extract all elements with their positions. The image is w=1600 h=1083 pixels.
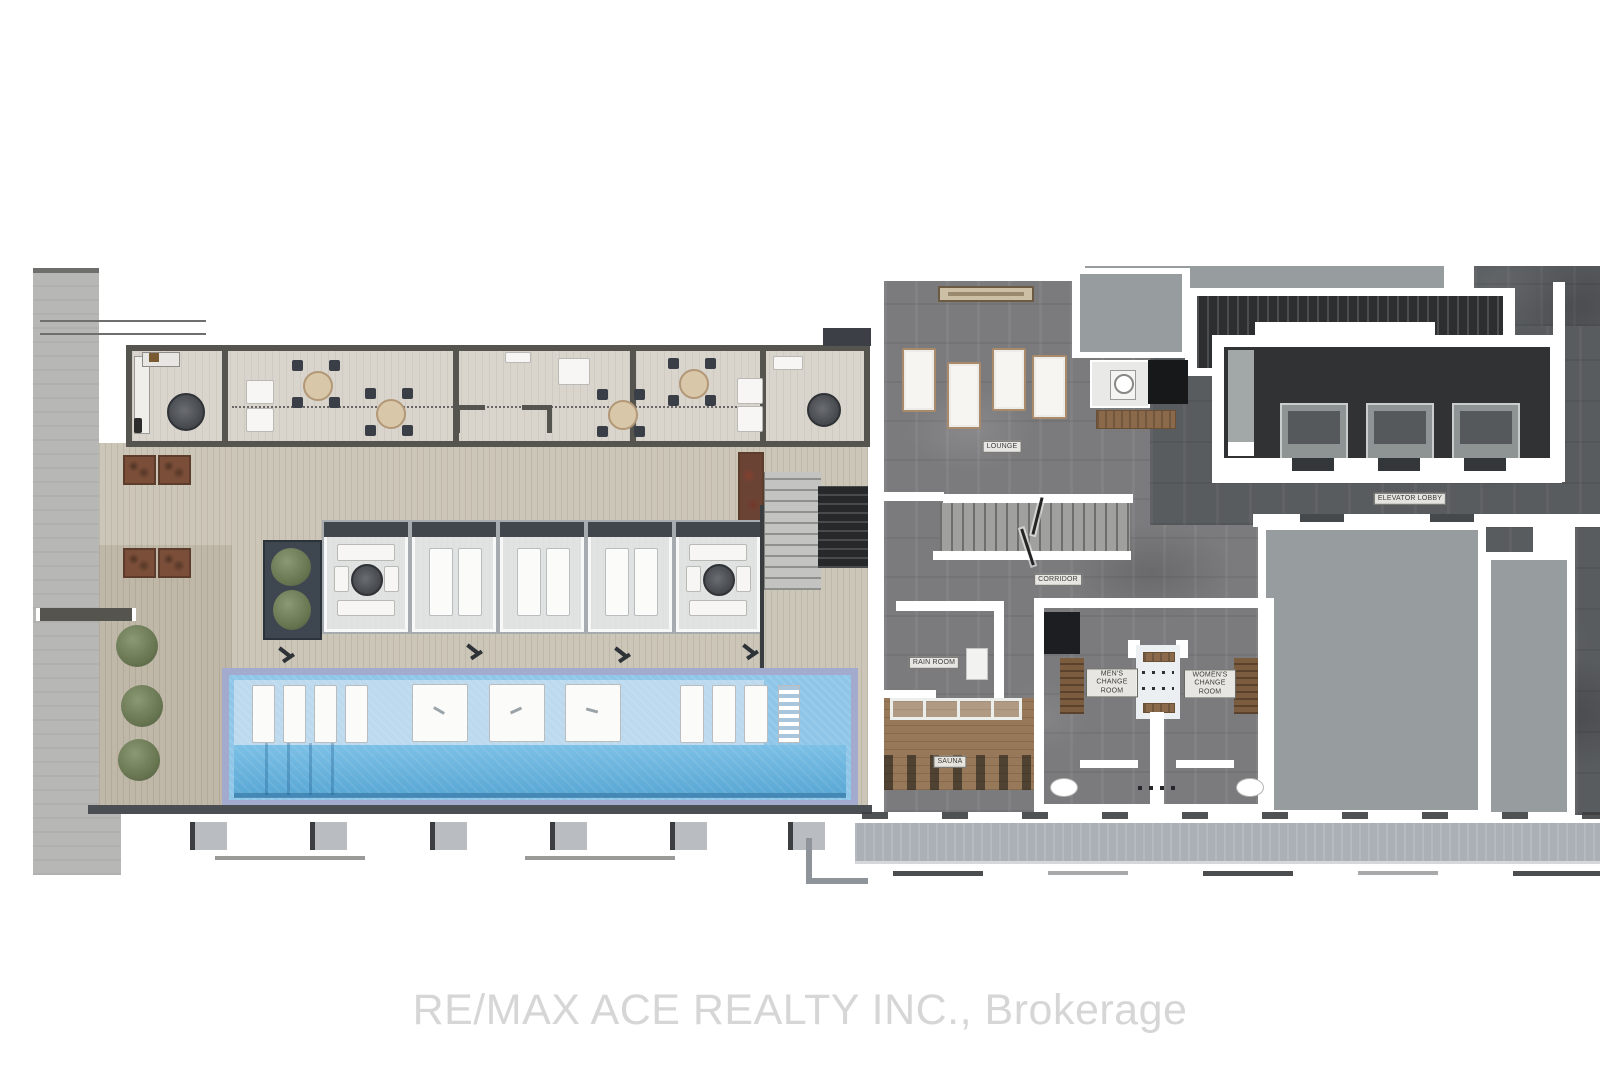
water-shadow bbox=[287, 743, 290, 795]
label-sauna: SAUNA bbox=[933, 756, 966, 768]
curb-tick bbox=[1203, 871, 1293, 876]
water-shadow bbox=[309, 743, 312, 795]
cabana-roof bbox=[588, 522, 672, 537]
curb-tick bbox=[1048, 871, 1128, 875]
armchair bbox=[737, 406, 763, 432]
cabana-roof bbox=[676, 522, 760, 537]
cabana-lounger bbox=[546, 548, 570, 616]
shower-dots bbox=[1138, 786, 1176, 790]
chair bbox=[668, 395, 679, 406]
foliage bbox=[271, 548, 311, 586]
umbrella-icon bbox=[278, 646, 298, 666]
cabana-lounger bbox=[429, 548, 453, 616]
roof-block bbox=[823, 328, 871, 346]
washroom-wall bbox=[1150, 712, 1164, 806]
cabana-sofa bbox=[337, 544, 395, 561]
elevator-cab bbox=[1288, 411, 1340, 444]
cabinet bbox=[773, 356, 803, 370]
sidewalk bbox=[855, 820, 1600, 864]
rain-room-wall bbox=[896, 601, 1000, 611]
chair bbox=[634, 426, 645, 437]
kitchen-appliance bbox=[142, 352, 180, 367]
lockers-womens bbox=[1234, 658, 1258, 714]
pool-lounger bbox=[744, 685, 768, 743]
chair bbox=[402, 388, 413, 399]
chair bbox=[329, 397, 340, 408]
screen-partition bbox=[547, 405, 552, 433]
pool-lounger bbox=[680, 685, 704, 743]
cabana-roof bbox=[324, 522, 408, 537]
storage-dark bbox=[1044, 612, 1080, 654]
dining-set bbox=[666, 356, 718, 408]
shaft-column bbox=[1228, 350, 1254, 456]
chair bbox=[292, 397, 303, 408]
deck-shade bbox=[99, 545, 232, 813]
watermark-text: RE/MAX ACE REALTY INC., Brokerage bbox=[413, 986, 1188, 1035]
pool-daybed bbox=[412, 684, 468, 742]
chair bbox=[597, 426, 608, 437]
column bbox=[670, 822, 707, 850]
curb-tick bbox=[1358, 871, 1438, 875]
chair bbox=[329, 360, 340, 371]
cabana bbox=[410, 520, 498, 634]
elevator-car bbox=[1366, 403, 1434, 460]
round-table bbox=[167, 393, 205, 431]
chair bbox=[292, 360, 303, 371]
cabinet bbox=[505, 352, 531, 363]
elevator-cab bbox=[1374, 411, 1426, 444]
chair bbox=[365, 425, 376, 436]
rain-room-fixture bbox=[966, 648, 988, 680]
grey-room-right bbox=[1491, 560, 1567, 812]
cabana-table bbox=[703, 564, 735, 596]
planter-box bbox=[158, 455, 191, 485]
toilet bbox=[1050, 778, 1078, 797]
wall-segment bbox=[36, 608, 136, 621]
dining-table bbox=[376, 399, 406, 429]
railing-top-left bbox=[40, 320, 206, 335]
kitchen-item-dark bbox=[134, 418, 142, 433]
pool-lounger bbox=[283, 685, 306, 743]
concrete-edge bbox=[33, 268, 99, 273]
change-room-wall bbox=[1264, 598, 1274, 812]
label-lounge: LOUNGE bbox=[983, 441, 1022, 453]
label-mens-change-room: MEN'S CHANGE ROOM bbox=[1086, 668, 1138, 697]
lockers-mens bbox=[1060, 658, 1084, 714]
curb-tick bbox=[893, 871, 983, 876]
cabana-lounger bbox=[517, 548, 541, 616]
curb-line bbox=[525, 856, 675, 860]
grey-room-top bbox=[1080, 274, 1182, 352]
change-room-wall bbox=[1034, 598, 1274, 608]
lounge-daybed bbox=[902, 348, 936, 412]
elevator-door-gap bbox=[1464, 458, 1506, 471]
planter-box bbox=[123, 548, 156, 578]
foliage bbox=[273, 590, 311, 630]
lounge-daybed bbox=[992, 348, 1026, 411]
cabana-roof bbox=[500, 522, 584, 537]
column bbox=[430, 822, 467, 850]
dining-set bbox=[363, 386, 415, 438]
chair bbox=[634, 389, 645, 400]
cabana bbox=[498, 520, 586, 634]
umbrella-icon bbox=[614, 646, 634, 666]
bench bbox=[1096, 410, 1176, 429]
cabana-table bbox=[351, 564, 383, 596]
cabana-sofa bbox=[337, 600, 395, 616]
console-table bbox=[938, 286, 1034, 302]
curb-tick bbox=[1513, 871, 1600, 876]
stair-wall bbox=[943, 494, 1133, 503]
elevator-car bbox=[1280, 403, 1348, 460]
wall-segment bbox=[884, 492, 944, 501]
column bbox=[190, 822, 227, 850]
cabana-sofa bbox=[689, 544, 747, 561]
wall-dashes bbox=[862, 812, 1600, 819]
chair bbox=[402, 425, 413, 436]
pool-daybed bbox=[565, 684, 621, 742]
chair bbox=[705, 358, 716, 369]
floor-plan-canvas: LOUNGE CORRIDOR RAIN ROOM SAUNA MEN'S CH… bbox=[0, 0, 1600, 1083]
armchair bbox=[737, 378, 763, 404]
change-room-wall bbox=[1034, 598, 1044, 812]
cabana bbox=[674, 520, 762, 634]
glass-rail bbox=[88, 805, 872, 814]
pool-edge-shadow bbox=[234, 793, 846, 798]
cabana-roof bbox=[412, 522, 496, 537]
cabana-seat bbox=[384, 566, 399, 592]
label-elevator-lobby: ELEVATOR LOBBY bbox=[1374, 493, 1446, 505]
outdoor-stair bbox=[762, 472, 821, 590]
pool-ladder bbox=[778, 685, 800, 743]
chair bbox=[705, 395, 716, 406]
cabana bbox=[322, 520, 410, 634]
cabana-lounger bbox=[458, 548, 482, 616]
wall-notch bbox=[1533, 522, 1575, 556]
kitchen-item bbox=[149, 353, 159, 362]
column bbox=[310, 822, 347, 850]
swimming-pool bbox=[222, 668, 858, 807]
pool-daybed bbox=[489, 684, 545, 742]
cabana-seat bbox=[736, 566, 751, 592]
planter-box bbox=[123, 455, 156, 485]
partition-wall bbox=[222, 351, 228, 443]
label-corridor: CORRIDOR bbox=[1034, 574, 1082, 586]
elevator-door-gap bbox=[1292, 458, 1334, 471]
cabana-lounger bbox=[605, 548, 629, 616]
dining-table bbox=[679, 369, 709, 399]
lounge-daybed bbox=[947, 362, 981, 429]
armchair bbox=[246, 408, 274, 432]
planter-box bbox=[158, 548, 191, 578]
dining-set bbox=[290, 358, 342, 410]
sauna-wall bbox=[876, 690, 936, 698]
curb-line bbox=[215, 856, 365, 860]
water-shadow bbox=[265, 743, 268, 795]
shrub bbox=[116, 625, 158, 667]
cabinet bbox=[558, 358, 590, 385]
grey-room-large bbox=[1266, 530, 1478, 810]
chair bbox=[597, 389, 608, 400]
lounge-daybed bbox=[1032, 355, 1067, 419]
chair bbox=[668, 358, 679, 369]
bench bbox=[1143, 652, 1175, 662]
water-shadow bbox=[331, 743, 334, 795]
washroom bbox=[1090, 360, 1150, 408]
label-rain-room: RAIN ROOM bbox=[909, 657, 959, 669]
washroom-wall bbox=[1080, 760, 1138, 768]
umbrella-icon bbox=[466, 643, 486, 663]
dining-table bbox=[608, 400, 638, 430]
cabana-seat bbox=[686, 566, 701, 592]
change-room-wall bbox=[1034, 804, 1274, 812]
armchair bbox=[246, 380, 274, 404]
pool-deep-water bbox=[234, 745, 846, 797]
chair bbox=[365, 388, 376, 399]
stair-landing bbox=[1255, 322, 1435, 336]
dining-table bbox=[303, 371, 333, 401]
wall-right-edge bbox=[1553, 282, 1565, 482]
sauna-bench bbox=[890, 698, 1022, 720]
cabana bbox=[586, 520, 674, 634]
column bbox=[550, 822, 587, 850]
pool-lounger bbox=[712, 685, 736, 743]
bench-alcove bbox=[1136, 645, 1180, 719]
elevator-cab bbox=[1460, 411, 1512, 444]
pool-lounger bbox=[314, 685, 337, 743]
closet-dark bbox=[1148, 360, 1188, 404]
pool-lounger bbox=[252, 685, 275, 743]
dining-set bbox=[595, 387, 647, 439]
round-table bbox=[807, 393, 841, 427]
shrub bbox=[118, 739, 160, 781]
screen-partition bbox=[455, 405, 460, 433]
label-womens-change-room: WOMEN'S CHANGE ROOM bbox=[1184, 669, 1236, 698]
cabana-seat bbox=[334, 566, 349, 592]
cabana-sofa bbox=[689, 600, 747, 616]
shrub bbox=[121, 685, 163, 727]
umbrella-icon bbox=[742, 643, 762, 663]
sink bbox=[1114, 374, 1134, 394]
elevator-door-gap bbox=[1378, 458, 1420, 471]
toilet bbox=[1236, 778, 1264, 797]
rain-room-wall bbox=[994, 601, 1004, 709]
pool-lounger bbox=[345, 685, 368, 743]
cabana-lounger bbox=[634, 548, 658, 616]
elevator-car bbox=[1452, 403, 1520, 460]
washroom-wall bbox=[1176, 760, 1234, 768]
planter-green bbox=[263, 540, 322, 640]
outdoor-stair-dark bbox=[818, 486, 868, 568]
